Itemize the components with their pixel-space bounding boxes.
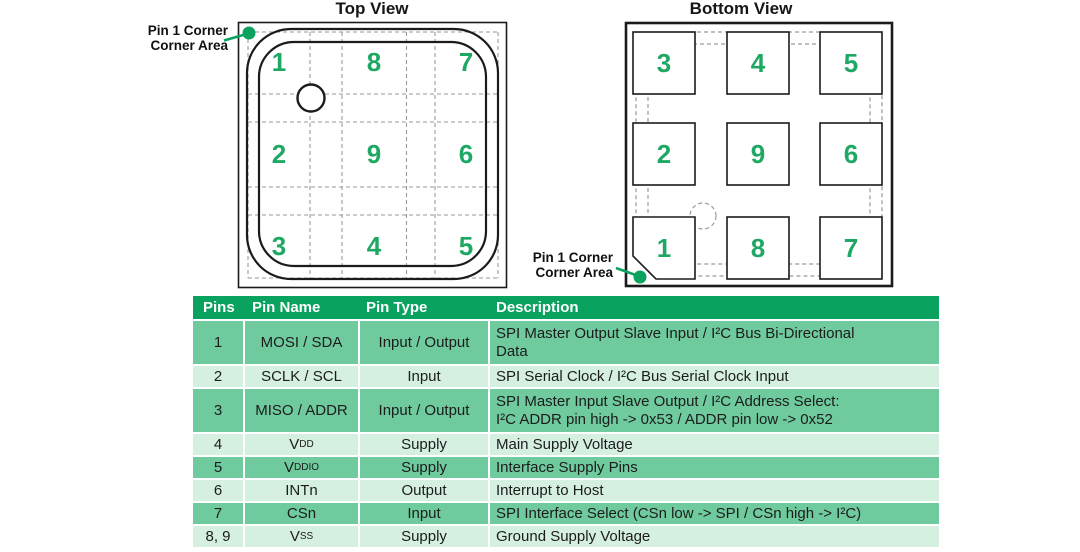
table-row-pin6: 6 INTn Output Interrupt to Host (193, 480, 939, 501)
cell-pin-type: Input (360, 503, 488, 524)
pin-number: 3 (657, 48, 671, 78)
cell-description: SPI Interface Select (CSn low -> SPI / C… (490, 503, 939, 524)
cell-pins: 8, 9 (193, 526, 243, 547)
pin-number: 4 (367, 231, 382, 261)
cell-pin-name: CSn (245, 503, 358, 524)
cell-pin-type: Input / Output (360, 389, 488, 432)
pin-number: 1 (657, 233, 671, 263)
package-views-drawing: 1 8 7 2 9 6 3 4 5 (0, 0, 1080, 296)
cell-pin-type: Supply (360, 457, 488, 478)
cell-pin-name: VSS (245, 526, 358, 547)
cell-pin-name: INTn (245, 480, 358, 501)
pin1-pointer-dot-bottom (634, 271, 647, 284)
datasheet-pinout-figure: Top View Bottom View Pin 1 Corner Corner… (0, 0, 1080, 552)
cell-pin-type: Input / Output (360, 321, 488, 364)
cell-pin-name: SCLK / SCL (245, 366, 358, 387)
cell-description: SPI Master Input Slave Output / I²C Addr… (490, 389, 939, 432)
cell-pin-name: MISO / ADDR (245, 389, 358, 432)
pin-number: 8 (751, 233, 765, 263)
cell-pins: 7 (193, 503, 243, 524)
pin-number: 6 (459, 139, 473, 169)
table-header-row: Pins Pin Name Pin Type Description (193, 296, 939, 319)
cell-pin-name: VDDIO (245, 457, 358, 478)
table-row-pin5: 5 VDDIO Supply Interface Supply Pins (193, 457, 939, 478)
pin-number: 8 (367, 47, 381, 77)
pin-number: 4 (751, 48, 766, 78)
pin-number: 6 (844, 139, 858, 169)
cell-description: Main Supply Voltage (490, 434, 939, 455)
pin-number: 9 (751, 139, 765, 169)
cell-pin-name: VDD (245, 434, 358, 455)
pin-number: 9 (367, 139, 381, 169)
cell-pin-name: MOSI / SDA (245, 321, 358, 364)
pin1-pointer-dot-top (243, 27, 256, 40)
cell-description: Interrupt to Host (490, 480, 939, 501)
cell-description: SPI Serial Clock / I²C Bus Serial Clock … (490, 366, 939, 387)
pin-number: 2 (657, 139, 671, 169)
cell-description: Interface Supply Pins (490, 457, 939, 478)
cell-pins: 3 (193, 389, 243, 432)
pin-description-table: Pins Pin Name Pin Type Description 1 MOS… (193, 296, 939, 547)
cell-pins: 2 (193, 366, 243, 387)
cell-pin-type: Input (360, 366, 488, 387)
table-row-pin3: 3 MISO / ADDR Input / Output SPI Master … (193, 389, 939, 432)
table-row-pin1: 1 MOSI / SDA Input / Output SPI Master O… (193, 321, 939, 364)
cell-pins: 5 (193, 457, 243, 478)
pin-number: 3 (272, 231, 286, 261)
col-header-description: Description (490, 296, 939, 319)
table-row-pin4: 4 VDD Supply Main Supply Voltage (193, 434, 939, 455)
table-row-pin8-9: 8, 9 VSS Supply Ground Supply Voltage (193, 526, 939, 547)
pin-number: 5 (459, 231, 473, 261)
cell-pins: 4 (193, 434, 243, 455)
cell-pin-type: Output (360, 480, 488, 501)
cell-pins: 1 (193, 321, 243, 364)
bottom-view-diagram: 3 4 5 2 9 6 1 8 7 (616, 23, 892, 286)
pin-number: 1 (272, 47, 286, 77)
table-row-pin7: 7 CSn Input SPI Interface Select (CSn lo… (193, 503, 939, 524)
cell-pins: 6 (193, 480, 243, 501)
cell-description: Ground Supply Voltage (490, 526, 939, 547)
cell-pin-type: Supply (360, 434, 488, 455)
col-header-pin-name: Pin Name (245, 296, 358, 319)
table-row-pin2: 2 SCLK / SCL Input SPI Serial Clock / I²… (193, 366, 939, 387)
col-header-pins: Pins (193, 296, 243, 319)
pin-number: 7 (459, 47, 473, 77)
cell-pin-type: Supply (360, 526, 488, 547)
pin-number: 5 (844, 48, 858, 78)
top-view-pin1-marker-circle (298, 85, 325, 112)
pin-number: 2 (272, 139, 286, 169)
top-view-diagram: 1 8 7 2 9 6 3 4 5 (224, 23, 507, 288)
cell-description: SPI Master Output Slave Input / I²C Bus … (490, 321, 939, 364)
col-header-pin-type: Pin Type (360, 296, 488, 319)
pin-number: 7 (844, 233, 858, 263)
